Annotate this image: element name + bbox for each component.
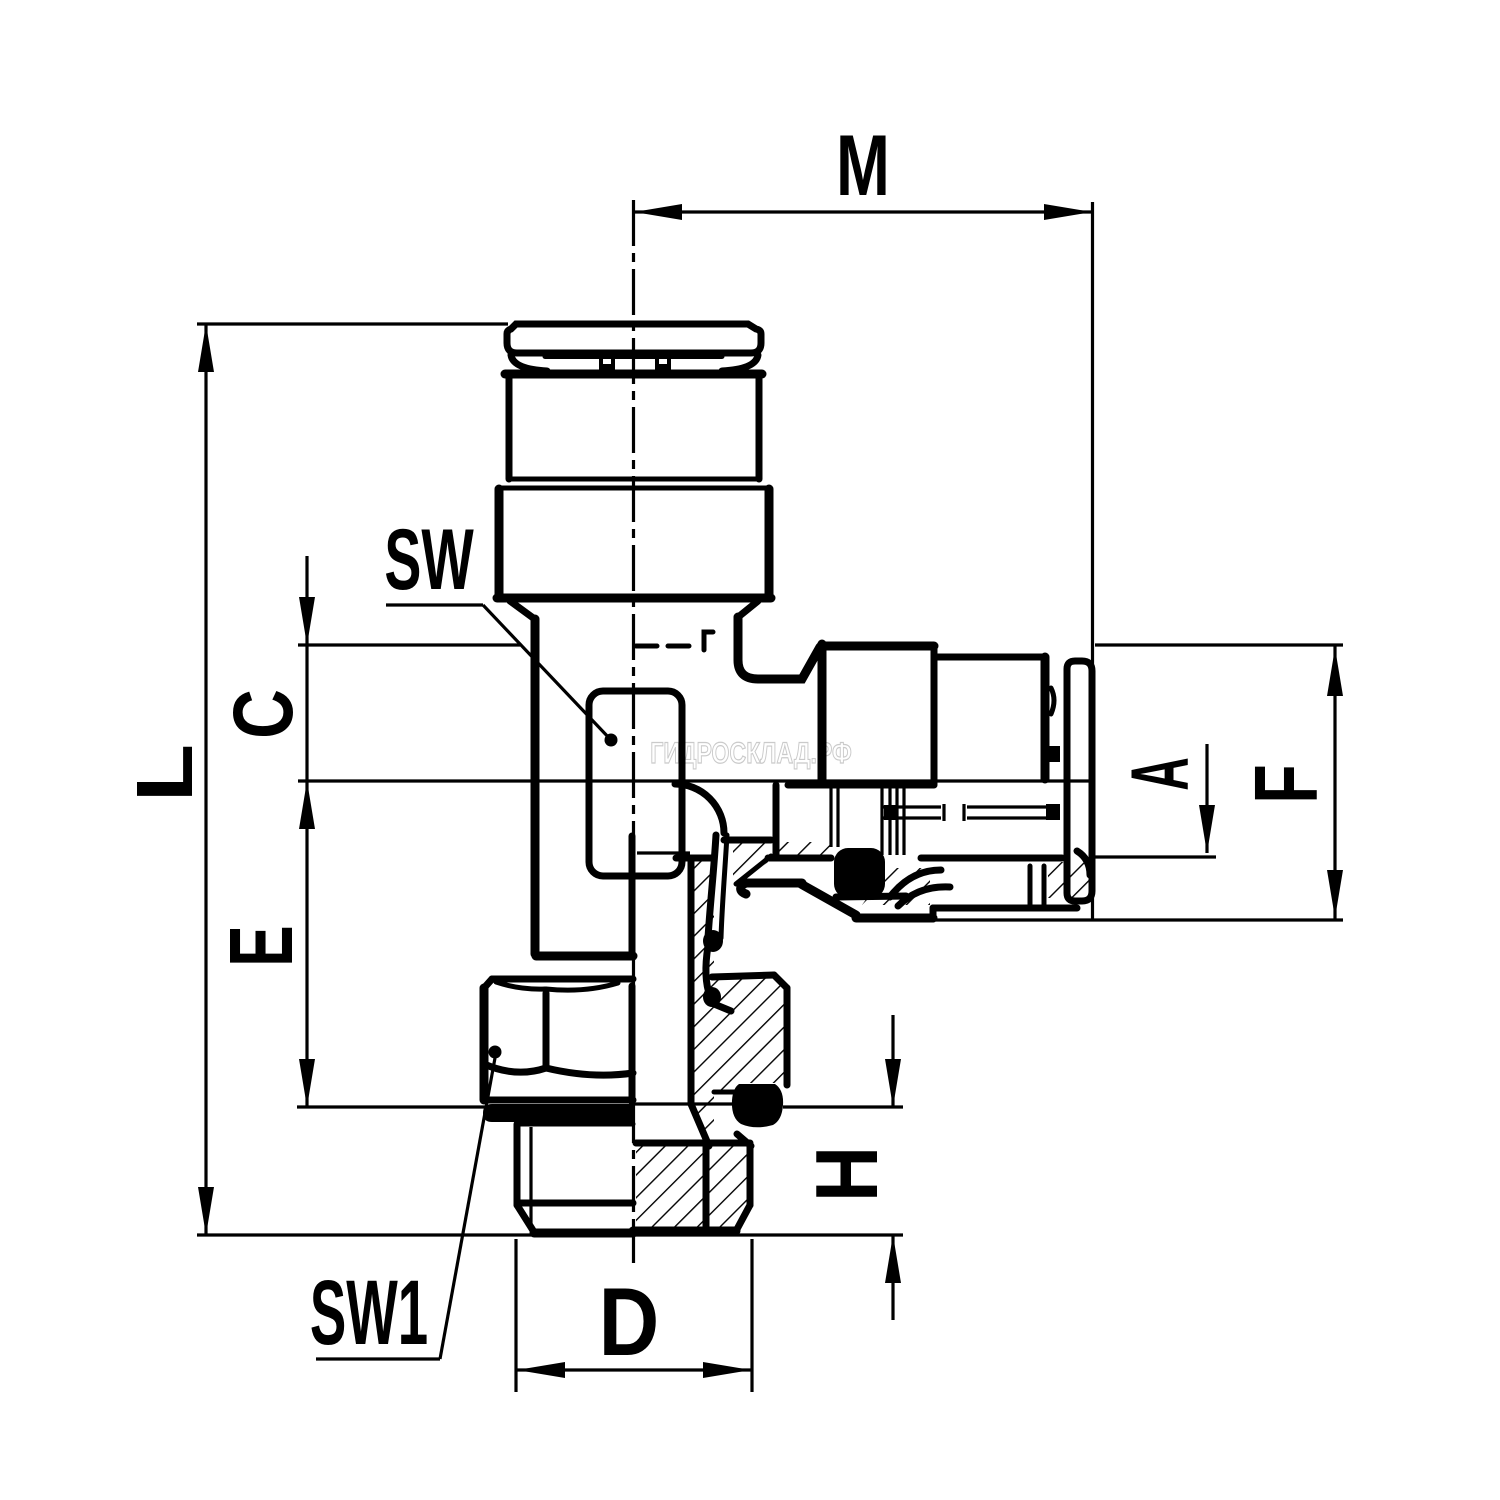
svg-text:SW1: SW1	[310, 1261, 428, 1363]
svg-text:SW: SW	[384, 512, 474, 608]
svg-text:D: D	[599, 1269, 660, 1377]
svg-text:C: C	[217, 689, 311, 739]
svg-text:H: H	[797, 1146, 896, 1202]
svg-text:L: L	[120, 744, 210, 802]
svg-text:M: M	[836, 118, 890, 214]
svg-text:E: E	[212, 925, 312, 966]
svg-text:F: F	[1236, 764, 1337, 804]
svg-text:A: A	[1115, 757, 1206, 790]
